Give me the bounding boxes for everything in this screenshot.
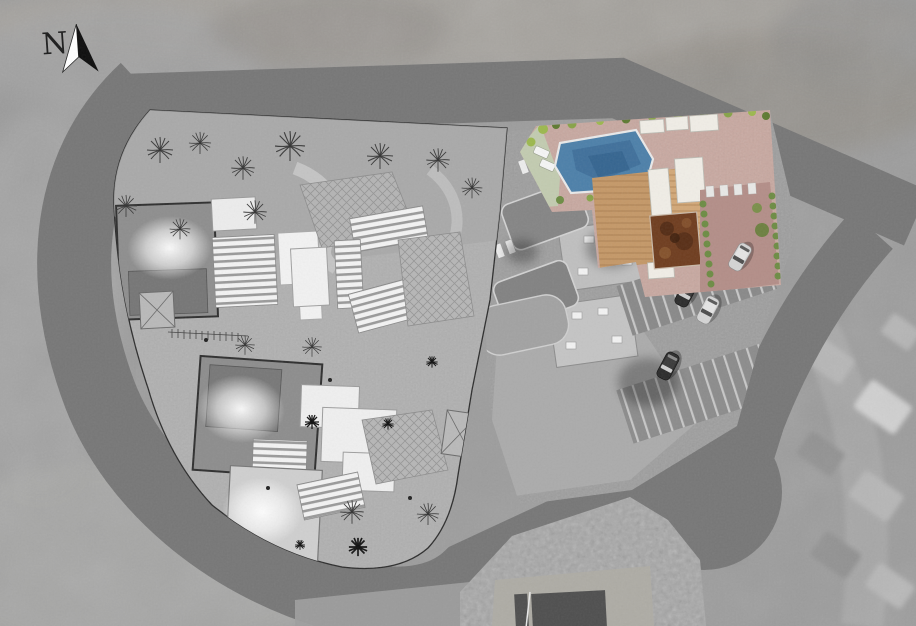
photo-grain-overlay [0, 0, 916, 626]
site-plan-image: N [0, 0, 916, 626]
